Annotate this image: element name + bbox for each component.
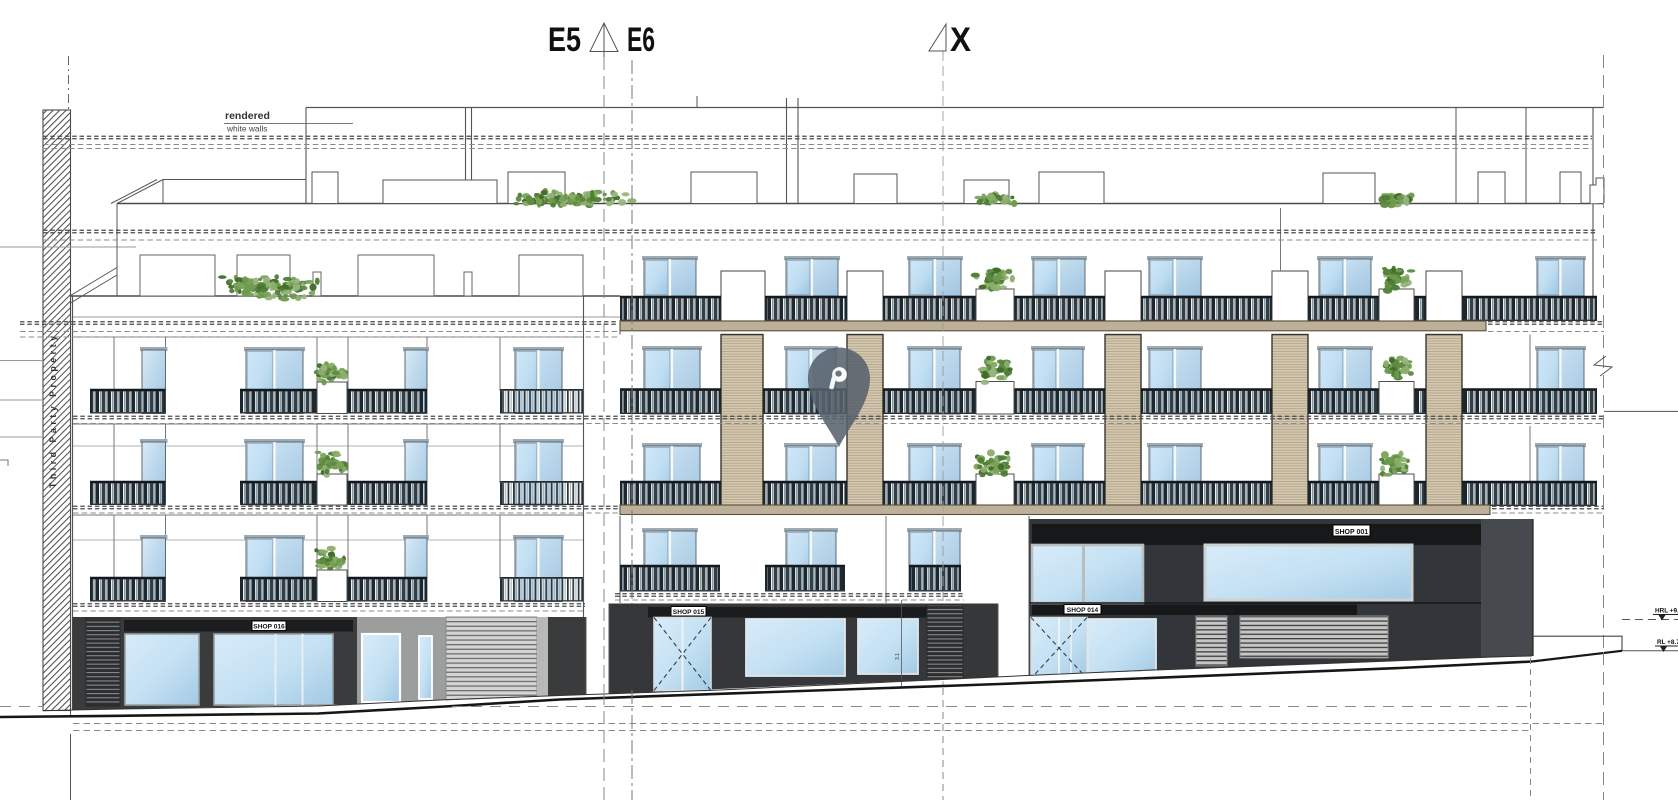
svg-text:SHOP 014: SHOP 014 [1067,607,1099,614]
svg-text:SHOP 001: SHOP 001 [1335,529,1368,536]
svg-text:E5: E5 [548,21,581,59]
svg-text:3.1: 3.1 [895,653,901,660]
svg-text:Third Party Property: Third Party Property [48,336,58,488]
svg-text:rendered: rendered [225,110,270,122]
svg-text:RL +8.7: RL +8.7 [1657,639,1678,646]
svg-text:E6: E6 [627,21,655,59]
svg-text:white walls: white walls [226,124,268,134]
svg-text:SHOP 016: SHOP 016 [253,624,285,631]
svg-text:X: X [950,21,971,59]
svg-text:SHOP 015: SHOP 015 [673,609,705,616]
svg-text:HRL +9,: HRL +9, [1655,608,1678,615]
